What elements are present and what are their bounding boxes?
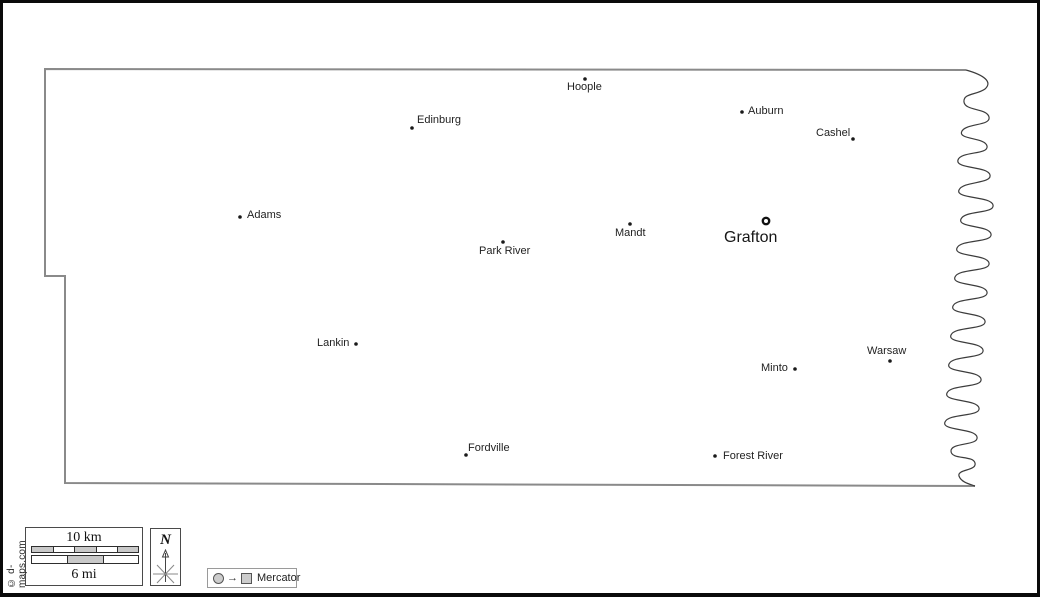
copyright-credit: © d-maps.com xyxy=(6,522,19,588)
mi-scale-bar xyxy=(31,555,139,564)
city-dot-lankin xyxy=(354,342,358,346)
city-dot-edinburg xyxy=(410,126,414,130)
scale-segment xyxy=(96,547,117,552)
city-label-edinburg: Edinburg xyxy=(417,114,461,126)
city-label-adams: Adams xyxy=(247,209,281,221)
projected-plane-icon xyxy=(241,573,252,584)
scale-segment xyxy=(74,547,95,552)
north-arrow-icon xyxy=(151,549,180,585)
scale-km-label: 10 km xyxy=(26,530,142,546)
city-label-hoople: Hoople xyxy=(567,81,602,93)
city-label-fordville: Fordville xyxy=(468,442,510,454)
city-dot-cashel xyxy=(851,137,855,141)
city-label-mandt: Mandt xyxy=(615,227,646,239)
km-scale-bar xyxy=(31,546,139,553)
north-compass-box: N xyxy=(150,528,181,586)
scale-mi-label: 6 mi xyxy=(26,567,142,583)
scale-segment xyxy=(32,547,53,552)
projection-name: Mercator xyxy=(255,572,300,584)
scale-bar-box: 10 km 6 mi xyxy=(25,527,143,586)
scale-segment xyxy=(32,556,67,563)
scale-segment xyxy=(103,556,138,563)
city-dot-adams xyxy=(238,215,242,219)
county-map-page: Hoople Auburn Cashel Edinburg Adams Park… xyxy=(0,0,1040,597)
projection-legend: → Mercator xyxy=(207,568,297,588)
city-dot-auburn xyxy=(740,110,744,114)
globe-sphere-icon xyxy=(213,573,224,584)
projection-arrow-icon: → xyxy=(227,573,238,583)
city-dot-warsaw xyxy=(888,359,892,363)
city-label-warsaw: Warsaw xyxy=(867,345,906,357)
city-label-minto: Minto xyxy=(761,362,788,374)
scale-segment xyxy=(53,547,74,552)
city-label-park-river: Park River xyxy=(479,245,530,257)
city-dot-mandt xyxy=(628,222,632,226)
county-seat-ring-grafton xyxy=(763,218,769,224)
north-label: N xyxy=(151,532,180,549)
city-label-lankin: Lankin xyxy=(317,337,349,349)
city-label-auburn: Auburn xyxy=(748,105,783,117)
city-dot-park-river xyxy=(501,240,505,244)
city-dot-minto xyxy=(793,367,797,371)
city-label-cashel: Cashel xyxy=(816,127,850,139)
city-label-forest-river: Forest River xyxy=(723,450,783,462)
scale-segment xyxy=(67,556,102,563)
county-outline-map xyxy=(0,0,1040,597)
river-border xyxy=(945,70,993,486)
city-dot-forest-river xyxy=(713,454,717,458)
county-seat-label-grafton: Grafton xyxy=(724,229,777,246)
scale-segment xyxy=(117,547,138,552)
